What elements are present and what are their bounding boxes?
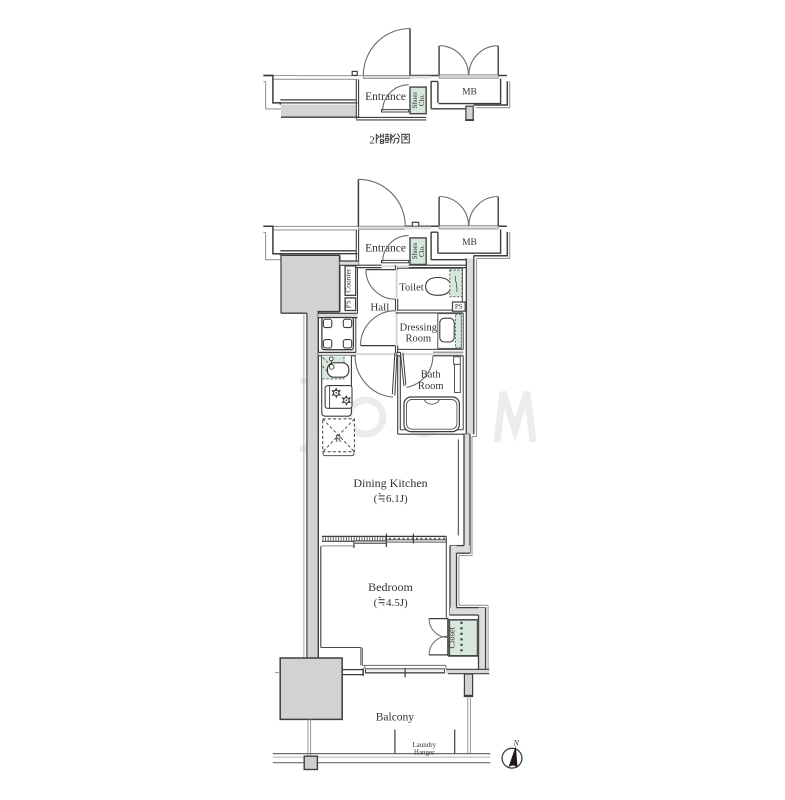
svg-text:Hanger: Hanger bbox=[414, 748, 435, 756]
svg-text:Balcony: Balcony bbox=[376, 712, 415, 724]
svg-text:Clo.: Clo. bbox=[418, 245, 426, 257]
svg-text:Dressing: Dressing bbox=[400, 322, 438, 333]
svg-text:N: N bbox=[513, 739, 520, 748]
svg-text:(: ( bbox=[374, 493, 378, 505]
svg-text:2: 2 bbox=[369, 134, 375, 146]
svg-text:MB: MB bbox=[462, 87, 477, 97]
svg-text:4.5J): 4.5J) bbox=[386, 597, 408, 609]
svg-text:Entrance: Entrance bbox=[365, 242, 406, 254]
svg-text:6.1J): 6.1J) bbox=[386, 493, 408, 505]
svg-text:Entrance: Entrance bbox=[365, 91, 406, 103]
svg-text:PS: PS bbox=[345, 300, 353, 308]
svg-text:PS: PS bbox=[455, 303, 463, 311]
svg-text:Bath: Bath bbox=[421, 370, 442, 381]
svg-text:(: ( bbox=[374, 597, 378, 609]
svg-text:Counter: Counter bbox=[344, 268, 353, 293]
svg-text:Room: Room bbox=[405, 334, 431, 345]
svg-text:R: R bbox=[335, 435, 342, 445]
svg-text:Dining Kitchen: Dining Kitchen bbox=[353, 476, 427, 490]
svg-text:Toilet: Toilet bbox=[399, 283, 423, 294]
svg-text:Room: Room bbox=[418, 381, 444, 392]
svg-text:Bedroom: Bedroom bbox=[368, 580, 413, 594]
svg-text:Clo.: Clo. bbox=[418, 94, 426, 106]
svg-text:MB: MB bbox=[462, 238, 477, 248]
